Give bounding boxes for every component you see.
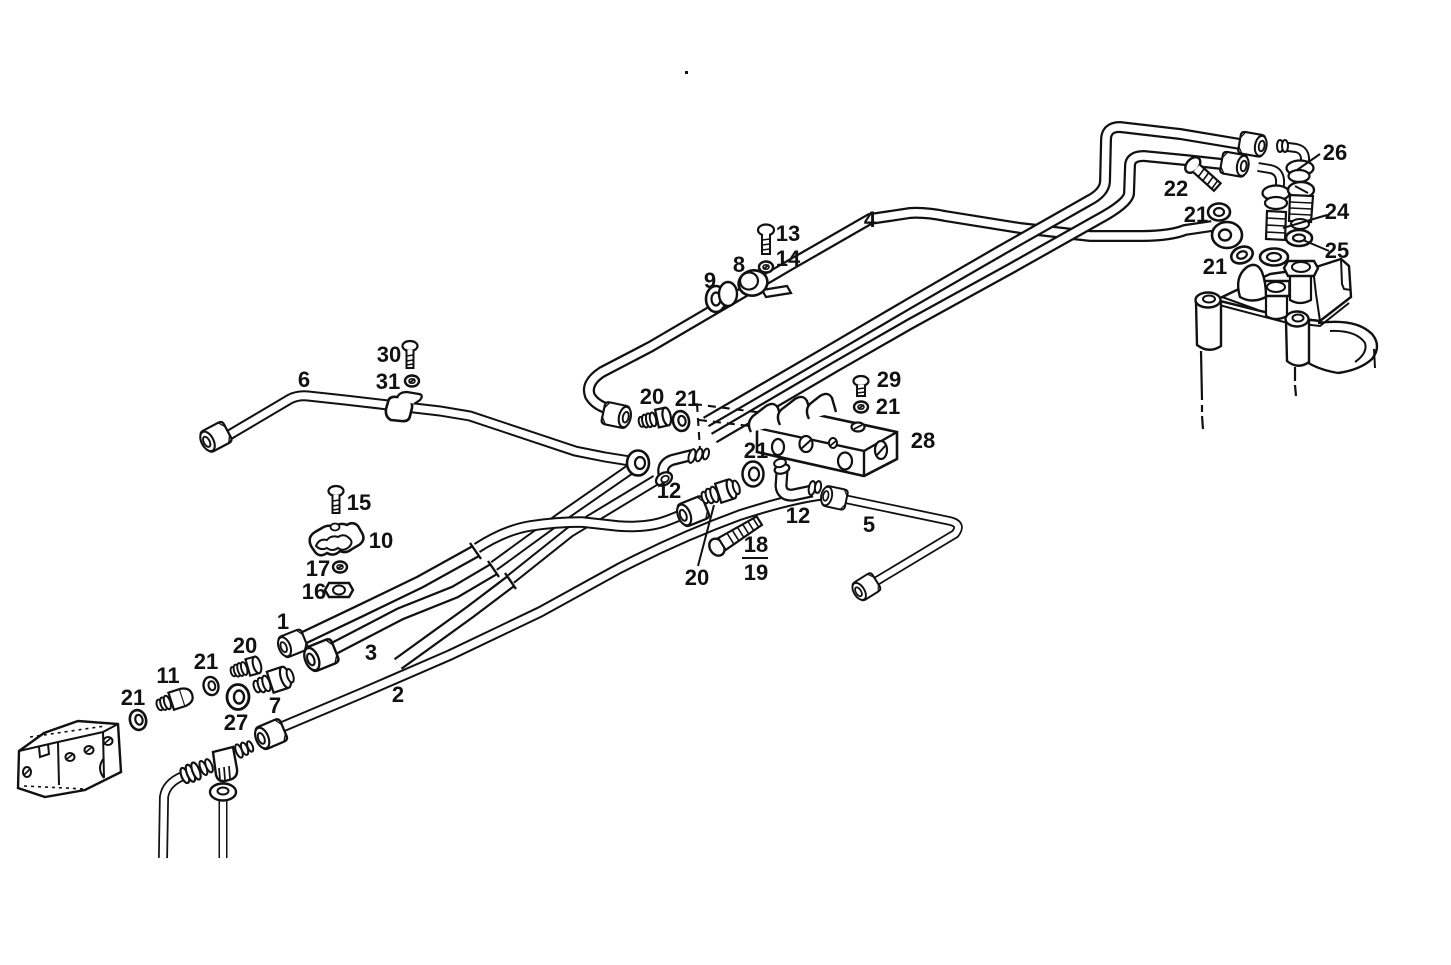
svg-text:24: 24 [1325, 199, 1350, 224]
svg-text:16: 16 [302, 579, 326, 604]
svg-text:20: 20 [233, 633, 257, 658]
svg-text:22: 22 [1164, 176, 1188, 201]
svg-text:21: 21 [1184, 202, 1208, 227]
svg-text:28: 28 [911, 428, 935, 453]
svg-text:18: 18 [744, 532, 768, 557]
svg-text:30: 30 [377, 342, 401, 367]
svg-text:2: 2 [392, 682, 404, 707]
svg-text:17: 17 [306, 556, 330, 581]
svg-text:25: 25 [1325, 238, 1349, 263]
svg-text:7: 7 [269, 693, 281, 718]
svg-text:12: 12 [657, 478, 681, 503]
svg-text:26: 26 [1323, 140, 1347, 165]
svg-text:6: 6 [298, 367, 310, 392]
svg-text:8: 8 [733, 252, 745, 277]
svg-text:21: 21 [876, 394, 900, 419]
svg-text:15: 15 [347, 490, 371, 515]
svg-text:20: 20 [685, 565, 709, 590]
svg-text:5: 5 [863, 512, 875, 537]
svg-text:19: 19 [744, 560, 768, 585]
svg-text:21: 21 [675, 386, 699, 411]
svg-text:12: 12 [786, 503, 810, 528]
svg-text:10: 10 [369, 528, 393, 553]
svg-text:27: 27 [224, 710, 248, 735]
svg-text:13: 13 [776, 221, 800, 246]
svg-text:21: 21 [1203, 254, 1227, 279]
svg-text:21: 21 [194, 649, 218, 674]
svg-text:21: 21 [121, 685, 145, 710]
svg-text:3: 3 [365, 640, 377, 665]
svg-text:21: 21 [744, 438, 768, 463]
svg-text:1: 1 [277, 609, 289, 634]
svg-text:4: 4 [864, 207, 877, 232]
svg-text:9: 9 [704, 268, 716, 293]
svg-text:31: 31 [376, 369, 400, 394]
svg-text:11: 11 [156, 663, 179, 688]
svg-text:29: 29 [877, 367, 901, 392]
svg-text:14: 14 [776, 246, 801, 271]
svg-text:20: 20 [640, 384, 664, 409]
